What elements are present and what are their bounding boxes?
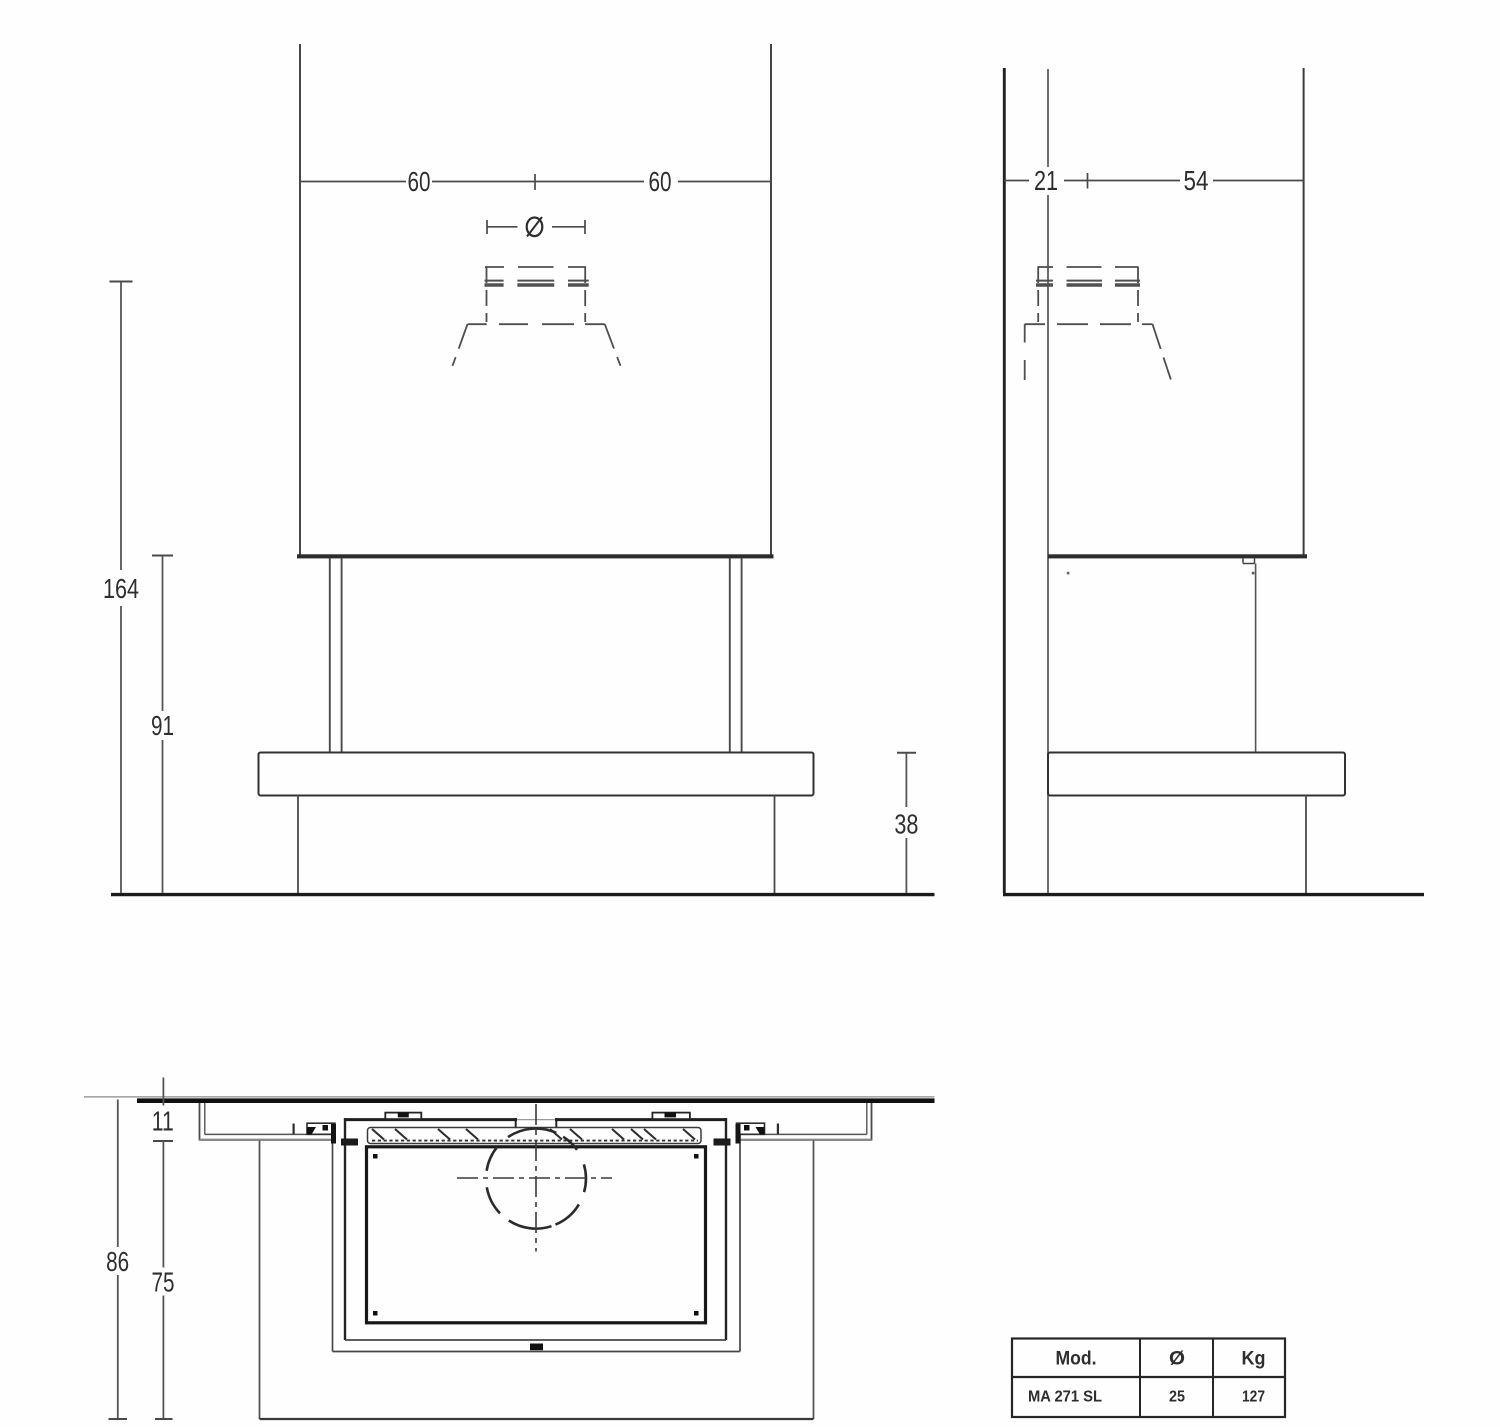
svg-text:Kg: Kg [1242,1348,1266,1370]
svg-text:164: 164 [103,573,139,604]
svg-text:60: 60 [649,166,672,197]
svg-text:25: 25 [1169,1389,1185,1406]
svg-text:Mod.: Mod. [1056,1348,1097,1370]
svg-text:11: 11 [152,1106,174,1137]
svg-text:60: 60 [408,166,431,197]
svg-text:75: 75 [152,1267,175,1298]
svg-text:127: 127 [1242,1389,1265,1406]
svg-text:21: 21 [1034,165,1058,196]
svg-text:86: 86 [106,1246,129,1277]
svg-text:38: 38 [894,809,918,840]
svg-text:91: 91 [151,710,174,741]
svg-text:54: 54 [1184,165,1209,196]
svg-text:Ø: Ø [1169,1348,1185,1370]
svg-text:MA 271 SL: MA 271 SL [1028,1389,1102,1406]
